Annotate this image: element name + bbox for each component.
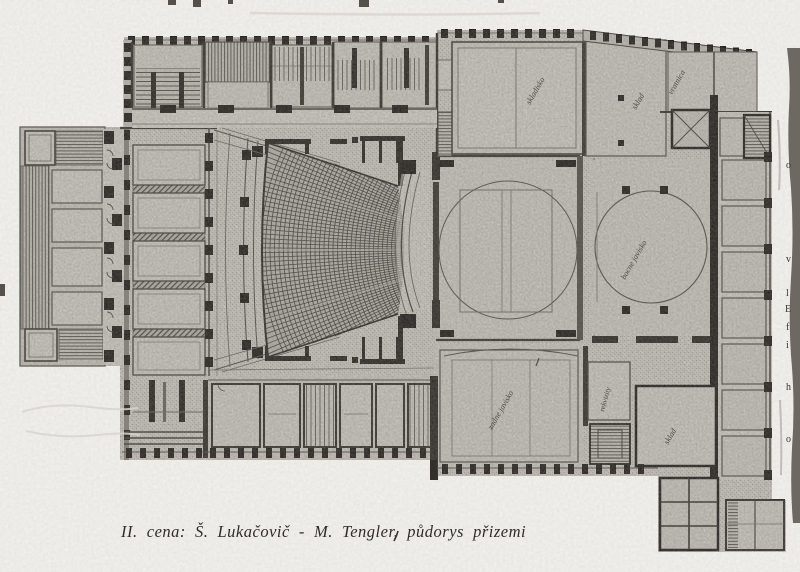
svg-text:l: l: [786, 288, 789, 299]
svg-text:v: v: [786, 254, 791, 265]
svg-text:E: E: [785, 304, 791, 315]
svg-text:o: o: [786, 160, 791, 171]
svg-text:i: i: [786, 340, 789, 351]
svg-text:o: o: [786, 434, 791, 445]
svg-text:h: h: [786, 382, 791, 393]
